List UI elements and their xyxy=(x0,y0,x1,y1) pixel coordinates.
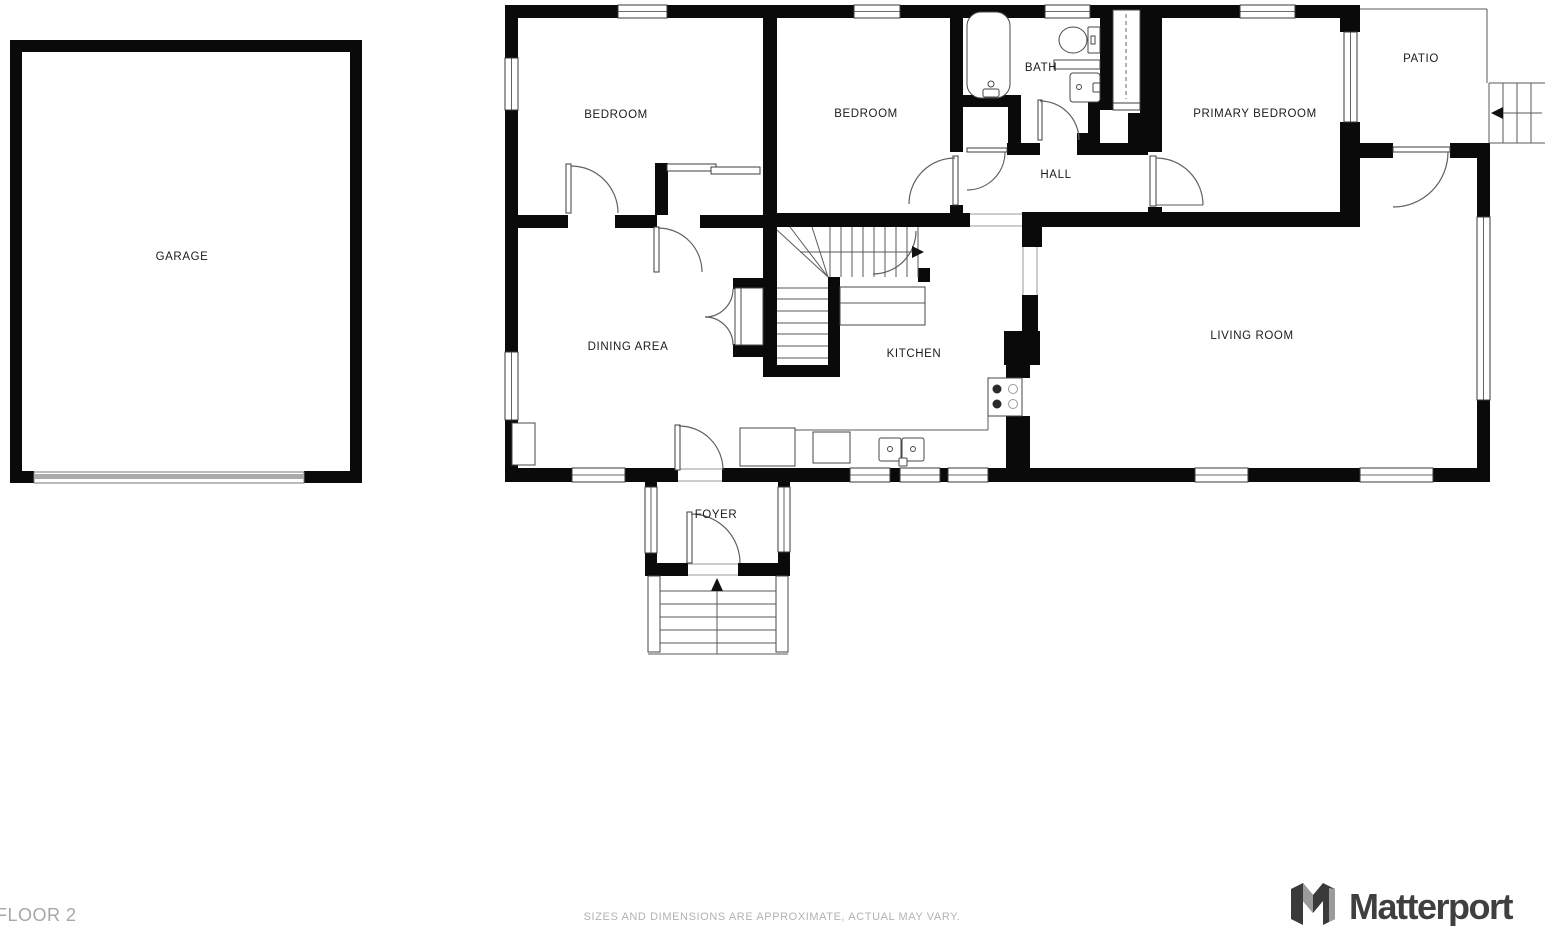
hall-closet-door xyxy=(967,148,1007,190)
toilet xyxy=(1059,27,1100,53)
window xyxy=(850,468,890,482)
window xyxy=(1344,32,1357,122)
dining-fixtures xyxy=(512,288,763,465)
window xyxy=(1045,5,1090,18)
window xyxy=(1240,5,1295,18)
room-label-bedroom1: BEDROOM xyxy=(584,109,648,121)
window xyxy=(854,5,900,18)
window xyxy=(900,468,940,482)
matterport-wordmark: Matterport xyxy=(1349,886,1514,926)
room-label-bedroom2: BEDROOM xyxy=(834,108,898,120)
dining-cabinet xyxy=(512,423,535,465)
primary-bedroom-door xyxy=(1150,156,1203,206)
patio-door xyxy=(1393,147,1450,207)
kitchen-counter-mid xyxy=(840,287,925,325)
floor-label: FLOOR 2 xyxy=(0,905,77,925)
room-label-bath: BATH xyxy=(1025,62,1057,74)
vanity-counter xyxy=(1054,60,1100,69)
disclaimer-text: SIZES AND DIMENSIONS ARE APPROXIMATE, AC… xyxy=(584,911,961,923)
bath-fixtures xyxy=(967,10,1140,110)
bedroom1-closet-slider xyxy=(667,164,760,174)
entry-up-arrow xyxy=(711,578,723,591)
dishwasher xyxy=(813,432,850,463)
room-label-foyer: FOYER xyxy=(695,509,738,521)
window xyxy=(572,468,625,482)
bedroom1-door xyxy=(566,164,618,213)
window xyxy=(1360,468,1433,482)
refrigerator xyxy=(740,428,795,466)
patio-steps-arrow xyxy=(1491,107,1503,119)
window xyxy=(1477,217,1490,400)
window xyxy=(505,352,518,420)
window xyxy=(645,487,657,553)
patio-structure xyxy=(1360,9,1545,143)
room-label-patio: PATIO xyxy=(1403,53,1439,65)
room-label-garage: GARAGE xyxy=(156,251,209,263)
dining-door xyxy=(654,227,702,272)
window xyxy=(778,487,790,552)
bathtub xyxy=(967,12,1010,98)
patio-steps xyxy=(1489,83,1545,143)
room-label-hall: HALL xyxy=(1040,169,1071,181)
window xyxy=(618,5,667,18)
window xyxy=(505,58,518,110)
room-label-kitchen: KITCHEN xyxy=(887,348,942,360)
bedroom2-door xyxy=(909,156,958,205)
kitchen-sink xyxy=(879,438,924,466)
matterport-logo-icon xyxy=(1291,883,1335,925)
bath-door xyxy=(1038,100,1079,140)
dining-closet xyxy=(735,288,763,345)
window xyxy=(948,468,988,482)
floorplan-page: GARAGE BEDROOM BEDROOM BATH PRIMARY BEDR… xyxy=(0,0,1545,926)
entry-steps xyxy=(648,576,788,654)
garage-door xyxy=(34,472,304,483)
footer: FLOOR 2 SIZES AND DIMENSIONS ARE APPROXI… xyxy=(0,883,1514,926)
bath-sink xyxy=(1070,73,1100,102)
floorplan-drawing: GARAGE BEDROOM BEDROOM BATH PRIMARY BEDR… xyxy=(0,0,1545,926)
dining-closet-doors xyxy=(705,289,733,345)
room-label-primary-bedroom: PRIMARY BEDROOM xyxy=(1193,108,1317,120)
room-label-dining-area: DINING AREA xyxy=(588,341,669,353)
room-label-living-room: LIVING ROOM xyxy=(1210,330,1293,342)
stove xyxy=(988,378,1022,416)
hall-wardrobe xyxy=(1113,10,1140,110)
room-labels: GARAGE BEDROOM BEDROOM BATH PRIMARY BEDR… xyxy=(156,53,1439,521)
window xyxy=(1195,468,1248,482)
foyer-inner-door xyxy=(675,425,723,470)
